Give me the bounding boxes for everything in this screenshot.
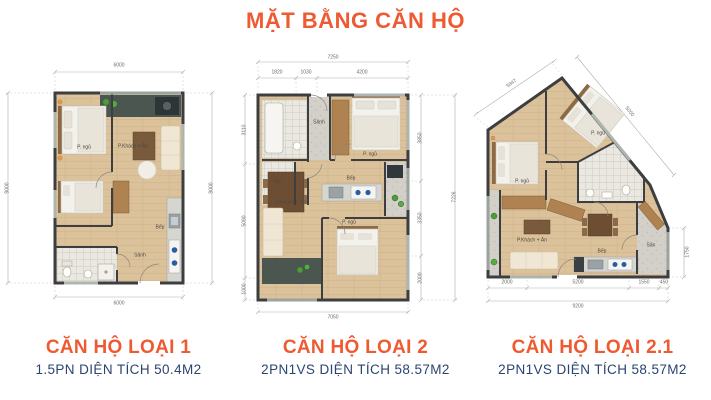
plan-3: 5947 5000 1750 2000 5200 1550 450 9200 P… bbox=[474, 50, 711, 400]
dim-bottom-total: 7050 bbox=[327, 316, 338, 321]
dim-right-total: 7226 bbox=[453, 191, 458, 202]
dim-top-1: 1820 bbox=[271, 71, 282, 76]
plan-2-balcony-right bbox=[385, 162, 408, 216]
dim-left-1: 3110 bbox=[243, 125, 248, 136]
plan-2-sofa bbox=[263, 208, 283, 256]
dim-left-2: 5090 bbox=[243, 215, 248, 226]
plan-2-hall-floor bbox=[308, 95, 330, 160]
plan-3-entry-gap bbox=[557, 275, 577, 279]
dim-bottom-3: 1550 bbox=[638, 281, 649, 286]
dim-left: 9000 bbox=[6, 182, 11, 193]
plan-2-dining-table bbox=[263, 172, 309, 212]
dim-top: 6000 bbox=[113, 64, 124, 69]
plan-3-sofa bbox=[510, 252, 558, 269]
room-label-hall: Sảnh bbox=[313, 121, 325, 126]
plan-2-wardrobe bbox=[332, 100, 349, 155]
room-label-bedroom2: P. ngủ bbox=[515, 180, 529, 185]
plan-3-balcony-right bbox=[637, 201, 668, 274]
room-label-bedroom2: P. ngủ bbox=[342, 221, 356, 226]
plan-1-title: CĂN HỘ LOẠI 1 bbox=[0, 337, 237, 359]
dim-bottom-2: 5200 bbox=[572, 281, 583, 286]
plan-2: 7250 1820 1030 4200 3110 5090 1000 3850 … bbox=[237, 50, 474, 400]
plan-3-drawing bbox=[474, 50, 711, 335]
dim-right-2: 3350 bbox=[419, 212, 424, 223]
plan-1-entry-gap bbox=[138, 281, 160, 285]
plan-2-drawing bbox=[237, 50, 474, 335]
dim-top-2: 1030 bbox=[300, 71, 311, 76]
plan-3-wardrobe bbox=[502, 196, 546, 209]
plan-1-subtitle: 1.5PN DIỆN TÍCH 50.4M2 bbox=[0, 362, 237, 377]
plan-1-bathroom bbox=[57, 247, 117, 282]
plan-2-title: CĂN HỘ LOẠI 2 bbox=[237, 337, 474, 359]
plan-3-subtitle: 2PN1VS DIỆN TÍCH 58.57M2 bbox=[474, 362, 711, 377]
dim-bottom: 6000 bbox=[113, 302, 124, 307]
plan-2-kitchen bbox=[322, 184, 382, 201]
floor-plan-sheet: MẶT BẰNG CĂN HỘ bbox=[0, 0, 711, 400]
dim-bottom-total: 9200 bbox=[572, 305, 583, 310]
room-label-hall: Sảnh bbox=[134, 254, 146, 259]
room-label-bedroom1: P. ngủ bbox=[363, 153, 377, 158]
dim-right-1: 3850 bbox=[419, 132, 424, 143]
plan-1-drawing bbox=[0, 50, 237, 335]
room-label-living: P.Khách + Ăn bbox=[517, 239, 547, 244]
dim-right: 9000 bbox=[210, 182, 215, 193]
dim-bottom-1: 2000 bbox=[501, 281, 512, 286]
room-label-kitchen: Bếp bbox=[598, 250, 607, 255]
room-label-wc: WC bbox=[274, 181, 282, 186]
plan-1-wardrobe bbox=[113, 181, 129, 213]
plan-3-kitchen bbox=[574, 257, 638, 272]
plan-2-bed-2 bbox=[337, 226, 378, 275]
dim-top-total: 7250 bbox=[327, 56, 338, 61]
plan-2-subtitle: 2PN1VS DIỆN TÍCH 58.57M2 bbox=[237, 362, 474, 377]
dim-top-3: 4200 bbox=[356, 71, 367, 76]
dim-right: 1750 bbox=[686, 246, 691, 257]
dim-bottom-4: 450 bbox=[660, 281, 668, 286]
room-label-bedroom: P. ngủ bbox=[77, 146, 91, 151]
plan-2-balcony-bottom bbox=[262, 258, 322, 284]
room-label-living: P.Khách + Ăn bbox=[276, 201, 306, 206]
room-label-bedroom1: P. ngủ bbox=[591, 132, 605, 137]
page-title: MẶT BẰNG CĂN HỘ bbox=[0, 8, 711, 34]
room-label-kitchen: Bếp bbox=[156, 226, 165, 231]
plan-3-bed-left bbox=[491, 136, 538, 184]
plan-1: 6000 6000 9000 9000 P. ngủ P.Khách + Ăn … bbox=[0, 50, 237, 400]
plan-2-bathroom bbox=[262, 100, 308, 158]
plan-1-bed-main bbox=[58, 100, 106, 160]
room-label-living: P.Khách + Ăn bbox=[118, 145, 148, 150]
plan-3-title: CĂN HỘ LOẠI 2.1 bbox=[474, 337, 711, 359]
plan-1-kitchen bbox=[167, 198, 182, 282]
room-label-balcony: Sân bbox=[647, 244, 656, 249]
dim-left-3: 1000 bbox=[243, 283, 248, 294]
room-label-kitchen: Bếp bbox=[347, 177, 356, 182]
dim-right-3: 2000 bbox=[419, 272, 424, 283]
plan-3-cabinet bbox=[524, 220, 550, 234]
plan-3-balcony-left bbox=[488, 190, 500, 277]
plan-2-bed-1 bbox=[352, 95, 400, 150]
